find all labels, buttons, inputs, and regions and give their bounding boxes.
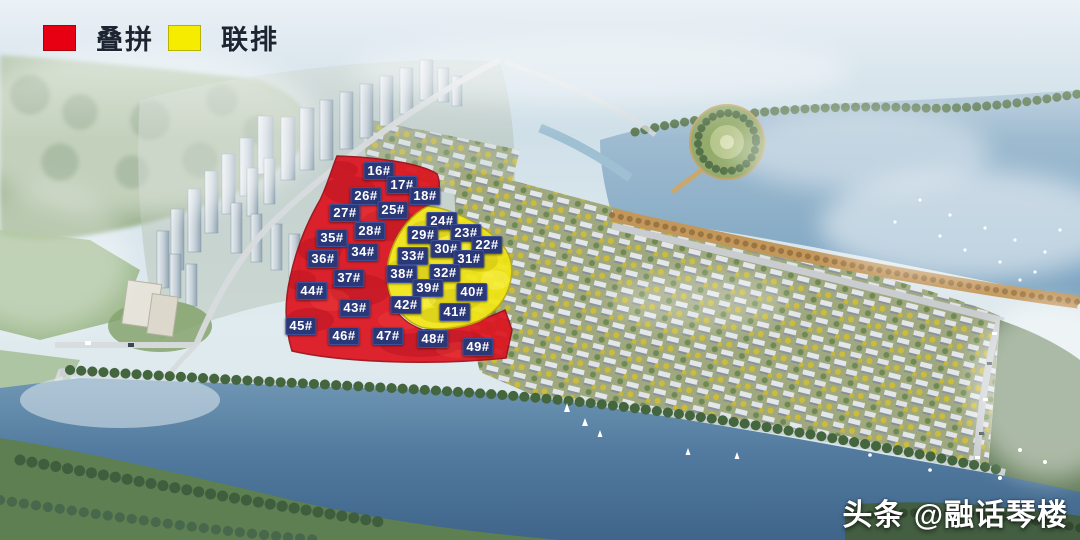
legend-swatch-duplex — [43, 25, 76, 51]
legend: 叠拼 联排 — [43, 18, 279, 57]
aerial-site-plan: 16#17#26#18#25#27#24#28#29#23#35#22#30#3… — [0, 0, 1080, 540]
aerial-rendering — [0, 0, 1080, 540]
legend-label-duplex: 叠拼 — [96, 18, 154, 57]
legend-swatch-townhouse — [168, 25, 201, 51]
legend-label-townhouse: 联排 — [221, 18, 279, 57]
watermark: 头条 @融话琴楼 — [842, 490, 1068, 534]
